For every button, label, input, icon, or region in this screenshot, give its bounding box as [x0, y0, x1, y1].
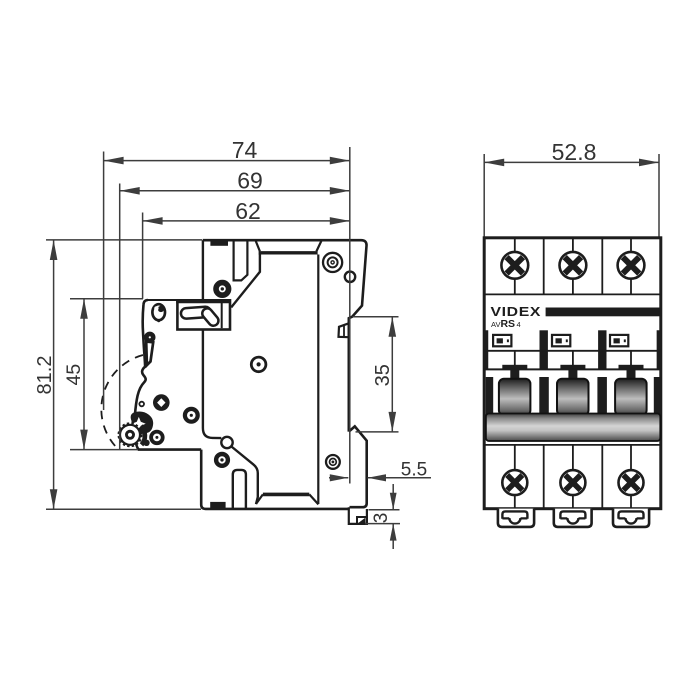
svg-text:81.2: 81.2: [34, 356, 56, 395]
svg-text:69: 69: [237, 167, 263, 193]
svg-text:52.8: 52.8: [552, 139, 597, 165]
svg-text:5.5: 5.5: [401, 460, 427, 481]
svg-text:45: 45: [63, 364, 85, 386]
svg-text:62: 62: [235, 198, 261, 224]
svg-text:74: 74: [232, 137, 258, 163]
svg-text:35: 35: [372, 364, 394, 386]
svg-text:AVRS 4: AVRS 4: [491, 318, 521, 330]
svg-text:VIDEX: VIDEX: [491, 305, 542, 319]
svg-text:3: 3: [371, 513, 392, 524]
